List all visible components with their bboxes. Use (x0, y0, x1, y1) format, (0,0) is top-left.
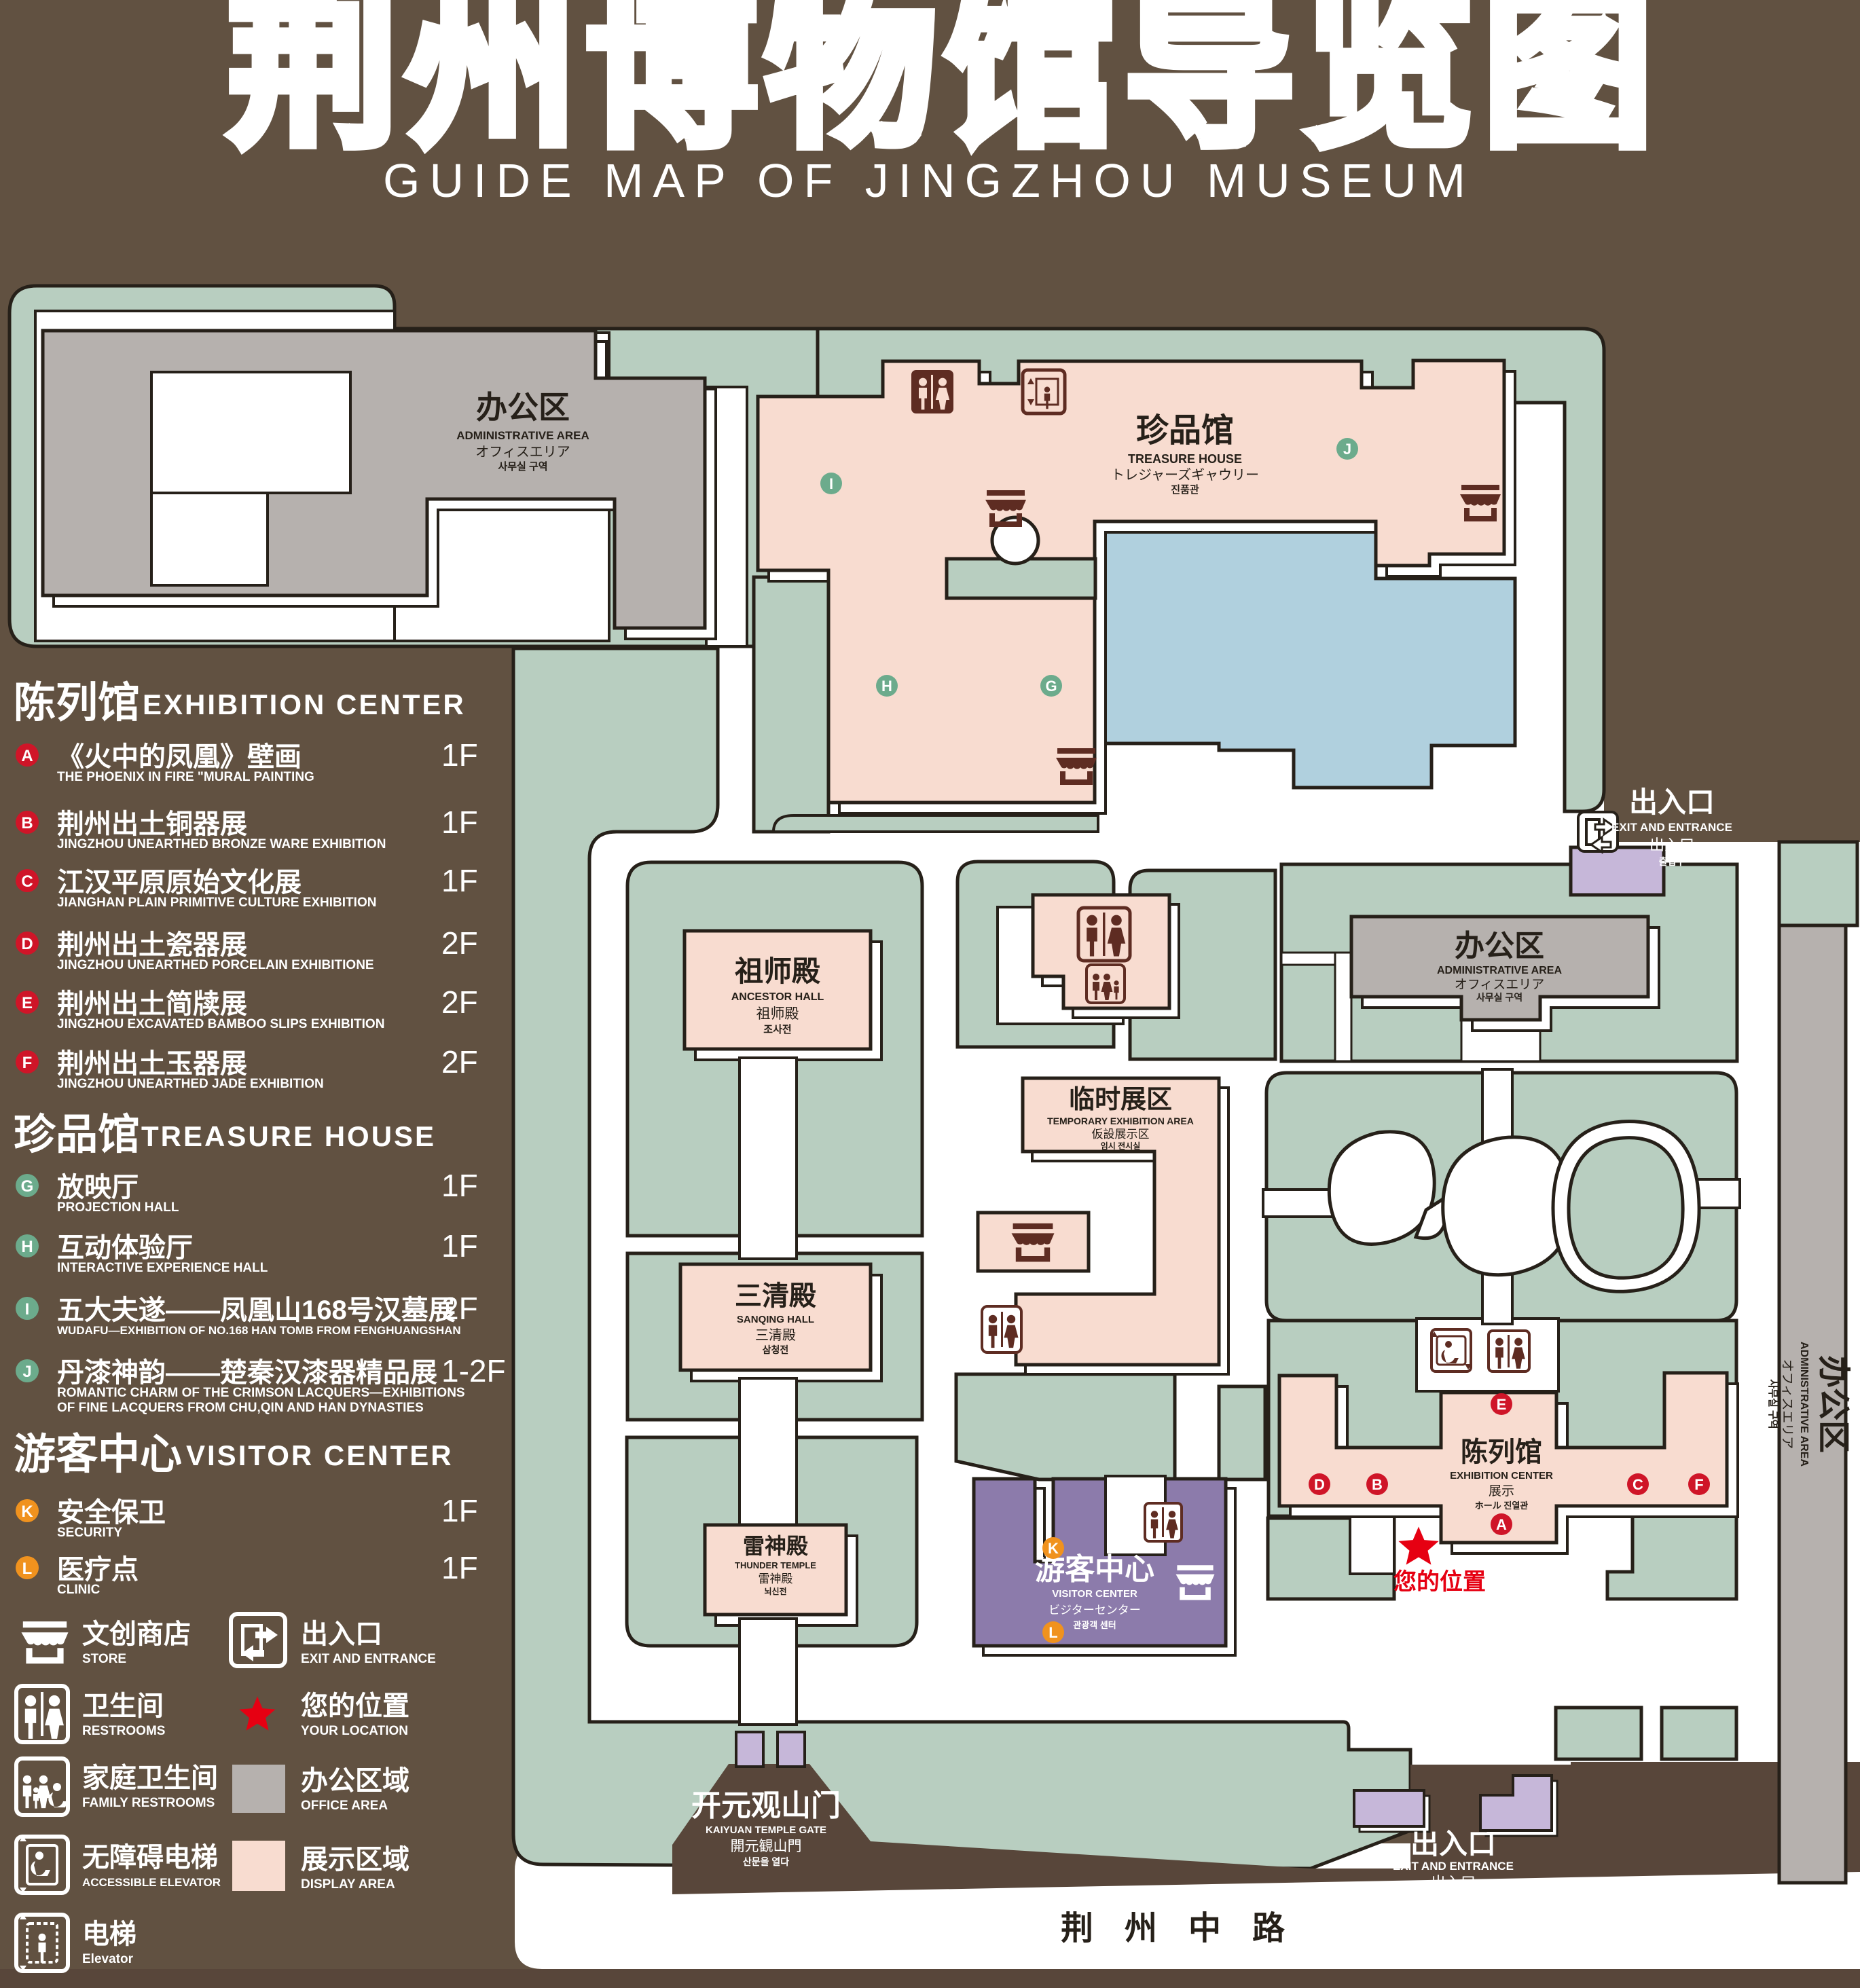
svg-text:A: A (21, 747, 33, 765)
svg-text:VISITOR CENTER: VISITOR CENTER (1052, 1588, 1137, 1600)
svg-text:INTERACTIVE EXPERIENCE HALL: INTERACTIVE EXPERIENCE HALL (57, 1261, 268, 1275)
svg-text:2F: 2F (441, 984, 478, 1020)
svg-text:J: J (22, 1363, 31, 1381)
svg-text:您的位置: 您的位置 (1393, 1569, 1486, 1595)
svg-text:2F: 2F (441, 1044, 478, 1080)
svg-text:出入口: 出入口 (1410, 1828, 1496, 1860)
svg-text:1F: 1F (441, 805, 478, 840)
svg-text:出入口: 出入口 (1629, 786, 1715, 818)
svg-text:OF FINE LACQUERS FROM CHU,QIN: OF FINE LACQUERS FROM CHU,QIN AND HAN DY… (57, 1401, 424, 1415)
svg-text:L: L (22, 1560, 33, 1578)
svg-text:KAIYUAN TEMPLE GATE: KAIYUAN TEMPLE GATE (706, 1824, 826, 1836)
svg-text:仮設展示区: 仮設展示区 (1092, 1128, 1150, 1141)
svg-text:オフィスエリア: オフィスエリア (475, 445, 570, 460)
svg-text:WUDAFU—EXHIBITION OF NO.168 HA: WUDAFU—EXHIBITION OF NO.168 HAN TOMB FRO… (57, 1324, 461, 1337)
svg-text:PROJECTION HALL: PROJECTION HALL (57, 1200, 179, 1215)
svg-text:STORE: STORE (82, 1652, 126, 1666)
svg-text:임시 전시실: 임시 전시실 (1101, 1141, 1141, 1151)
svg-text:OFFICE AREA: OFFICE AREA (301, 1799, 388, 1813)
svg-text:2F: 2F (441, 925, 478, 961)
svg-text:ADMINISTRATIVE AREA: ADMINISTRATIVE AREA (1798, 1342, 1810, 1467)
svg-text:临时展区: 临时展区 (1069, 1086, 1172, 1114)
svg-text:1F: 1F (441, 737, 478, 773)
svg-text:雷神殿: 雷神殿 (759, 1572, 793, 1585)
svg-text:TEMPORARY EXHIBITION AREA: TEMPORARY EXHIBITION AREA (1047, 1116, 1194, 1126)
svg-text:ホール 진열관: ホール 진열관 (1475, 1501, 1529, 1511)
svg-text:ADMINISTRATIVE AREA: ADMINISTRATIVE AREA (1437, 965, 1562, 976)
svg-text:家庭卫生间: 家庭卫生间 (82, 1763, 218, 1793)
svg-text:TREASURE HOUSE: TREASURE HOUSE (1128, 452, 1242, 466)
svg-text:出入口: 出入口 (1431, 1874, 1476, 1891)
svg-text:진품관: 진품관 (1171, 484, 1199, 496)
svg-text:オフィスエリア: オフィスエリア (1780, 1359, 1794, 1450)
svg-text:開元観山門: 開元観山門 (731, 1839, 802, 1854)
svg-text:医疗点: 医疗点 (57, 1555, 139, 1585)
svg-text:K: K (21, 1503, 33, 1521)
svg-text:トレジャーズギャウリー: トレジャーズギャウリー (1111, 467, 1259, 483)
svg-text:JIANGHAN PLAIN PRIMITIVE CULTU: JIANGHAN PLAIN PRIMITIVE CULTURE EXHIBIT… (57, 896, 376, 910)
svg-text:EXIT AND ENTRANCE: EXIT AND ENTRANCE (301, 1652, 436, 1666)
svg-text:A: A (1496, 1516, 1507, 1533)
svg-text:展示: 展示 (1489, 1484, 1514, 1498)
svg-text:江汉平原原始文化展: 江汉平原原始文化展 (57, 868, 302, 898)
svg-text:사무실 구역: 사무실 구역 (1767, 1379, 1779, 1429)
svg-text:祖师殿: 祖师殿 (756, 1006, 799, 1022)
svg-text:荆州出土瓷器展: 荆州出土瓷器展 (57, 930, 247, 960)
svg-text:JINGZHOU EXCAVATED BAMBOO SLIP: JINGZHOU EXCAVATED BAMBOO SLIPS EXHIBITI… (57, 1017, 384, 1031)
svg-text:출입구: 출입구 (1659, 856, 1685, 867)
svg-text:EXIT AND ENTRANCE: EXIT AND ENTRANCE (1393, 1860, 1514, 1873)
svg-text:开元观山门: 开元观山门 (691, 1789, 841, 1822)
svg-text:F: F (1694, 1476, 1703, 1493)
svg-text:1F: 1F (441, 1168, 478, 1203)
svg-text:산문을 열다: 산문을 열다 (743, 1856, 789, 1867)
svg-text:H: H (881, 678, 892, 695)
svg-text:THUNDER TEMPLE: THUNDER TEMPLE (735, 1560, 816, 1570)
svg-text:荆州中路: 荆州中路 (1061, 1911, 1316, 1947)
svg-text:2F: 2F (441, 1291, 478, 1326)
svg-text:삼청전: 삼청전 (763, 1344, 789, 1355)
svg-text:陈列馆: 陈列馆 (1461, 1437, 1542, 1467)
svg-text:互动体验厅: 互动体验厅 (57, 1233, 193, 1263)
svg-text:B: B (1372, 1476, 1383, 1493)
svg-text:뇌신전: 뇌신전 (764, 1586, 786, 1596)
svg-text:출입구: 출입구 (1440, 1892, 1467, 1903)
svg-text:CLINIC: CLINIC (57, 1583, 101, 1597)
svg-text:사무실 구역: 사무실 구역 (498, 461, 547, 473)
svg-text:J: J (1343, 441, 1351, 458)
svg-text:K: K (1048, 1540, 1059, 1557)
svg-text:관광객 센터: 관광객 센터 (1073, 1620, 1116, 1630)
svg-text:TREASURE HOUSE: TREASURE HOUSE (141, 1120, 436, 1152)
svg-text:DISPLAY AREA: DISPLAY AREA (301, 1877, 395, 1892)
svg-text:五大夫遂——凤凰山168号汉墓展: 五大夫遂——凤凰山168号汉墓展 (57, 1295, 456, 1325)
svg-text:珍品馆: 珍品馆 (14, 1111, 140, 1158)
svg-text:无障碍电梯: 无障碍电梯 (82, 1843, 218, 1873)
svg-text:三清殿: 三清殿 (735, 1281, 816, 1311)
svg-text:《火中的凤凰》壁画: 《火中的凤凰》壁画 (57, 742, 302, 772)
svg-text:荆州出土玉器展: 荆州出土玉器展 (57, 1049, 247, 1079)
svg-text:THE PHOENIX IN FIRE "MURAL PAI: THE PHOENIX IN FIRE "MURAL PAINTING (57, 770, 314, 784)
svg-text:EXIT AND ENTRANCE: EXIT AND ENTRANCE (1611, 821, 1732, 834)
svg-text:荆州出土铜器展: 荆州出土铜器展 (57, 809, 247, 839)
svg-text:安全保卫: 安全保卫 (57, 1497, 166, 1528)
svg-text:办公区: 办公区 (1455, 929, 1544, 963)
svg-text:RESTROOMS: RESTROOMS (82, 1724, 165, 1738)
svg-text:C: C (21, 872, 33, 891)
svg-text:出入口: 出入口 (301, 1619, 382, 1649)
svg-text:荆州出土简牍展: 荆州出土简牍展 (57, 989, 247, 1019)
svg-text:1F: 1F (441, 1550, 478, 1585)
svg-text:E: E (22, 994, 33, 1012)
svg-text:您的位置: 您的位置 (301, 1691, 409, 1721)
svg-text:卫生间: 卫生间 (82, 1691, 164, 1721)
svg-text:ANCESTOR HALL: ANCESTOR HALL (731, 991, 824, 1003)
svg-text:办公区: 办公区 (1815, 1355, 1851, 1453)
svg-text:ACCESSIBLE ELEVATOR: ACCESSIBLE ELEVATOR (82, 1876, 221, 1889)
svg-text:EXHIBITION CENTER: EXHIBITION CENTER (1450, 1470, 1553, 1481)
svg-text:VISITOR CENTER: VISITOR CENTER (186, 1439, 454, 1471)
svg-text:ADMINISTRATIVE AREA: ADMINISTRATIVE AREA (456, 429, 589, 442)
svg-text:放映厅: 放映厅 (57, 1173, 139, 1202)
svg-text:D: D (21, 935, 33, 953)
svg-text:珍品馆: 珍品馆 (1136, 413, 1234, 449)
svg-text:祖师殿: 祖师殿 (735, 955, 820, 987)
svg-text:FAMILY RESTROOMS: FAMILY RESTROOMS (82, 1796, 215, 1810)
svg-text:I: I (829, 475, 833, 492)
svg-text:L: L (1048, 1624, 1057, 1641)
svg-text:展示区域: 展示区域 (301, 1845, 409, 1875)
svg-text:JINGZHOU UNEARTHED BRONZE WARE: JINGZHOU UNEARTHED BRONZE WARE EXHIBITIO… (57, 837, 386, 851)
svg-text:F: F (22, 1054, 33, 1072)
svg-text:出入口: 出入口 (1649, 836, 1694, 853)
svg-text:1F: 1F (441, 863, 478, 898)
svg-text:JINGZHOU UNEARTHED JADE EXHIBI: JINGZHOU UNEARTHED JADE EXHIBITION (57, 1077, 324, 1091)
svg-text:雷神殿: 雷神殿 (743, 1534, 808, 1558)
svg-text:H: H (21, 1238, 33, 1256)
svg-text:Elevator: Elevator (82, 1952, 134, 1966)
svg-text:SANQING HALL: SANQING HALL (737, 1314, 814, 1325)
svg-text:사무실 구역: 사무실 구역 (1476, 992, 1522, 1003)
svg-text:办公区: 办公区 (476, 390, 570, 425)
svg-text:E: E (1497, 1396, 1507, 1413)
svg-text:C: C (1633, 1476, 1643, 1493)
svg-text:YOUR LOCATION: YOUR LOCATION (301, 1724, 408, 1738)
svg-text:G: G (1045, 678, 1057, 695)
svg-text:JINGZHOU UNEARTHED PORCELAIN E: JINGZHOU UNEARTHED PORCELAIN EXHIBITIONE (57, 958, 374, 972)
svg-text:GUIDE MAP OF JINGZHOU MUSEUM: GUIDE MAP OF JINGZHOU MUSEUM (383, 154, 1475, 207)
svg-text:1-2F: 1-2F (441, 1353, 506, 1388)
svg-text:G: G (21, 1177, 34, 1196)
svg-text:电梯: 电梯 (82, 1919, 136, 1949)
svg-text:游客中心: 游客中心 (14, 1431, 182, 1478)
svg-text:EXHIBITION CENTER: EXHIBITION CENTER (143, 688, 466, 720)
svg-text:B: B (21, 814, 33, 832)
svg-text:ROMANTIC CHARM OF THE CRIMSON: ROMANTIC CHARM OF THE CRIMSON LACQUERS—E… (57, 1386, 465, 1400)
svg-text:1F: 1F (441, 1228, 478, 1264)
svg-text:丹漆神韵——楚秦汉漆器精品展: 丹漆神韵——楚秦汉漆器精品展 (57, 1358, 437, 1388)
svg-text:オフィスエリア: オフィスエリア (1455, 978, 1545, 992)
svg-text:三清殿: 三清殿 (755, 1327, 796, 1343)
svg-text:文创商店: 文创商店 (82, 1619, 191, 1649)
svg-text:D: D (1314, 1476, 1325, 1493)
svg-text:ビジターセンター: ビジターセンター (1048, 1604, 1141, 1617)
svg-text:1F: 1F (441, 1493, 478, 1528)
svg-text:I: I (25, 1300, 30, 1319)
svg-text:SECURITY: SECURITY (57, 1526, 122, 1540)
svg-text:조사전: 조사전 (763, 1024, 791, 1035)
svg-text:陈列馆: 陈列馆 (14, 680, 140, 726)
svg-text:荆州博物馆导览图: 荆州博物馆导览图 (228, 0, 1662, 166)
svg-text:办公区域: 办公区域 (301, 1766, 409, 1796)
